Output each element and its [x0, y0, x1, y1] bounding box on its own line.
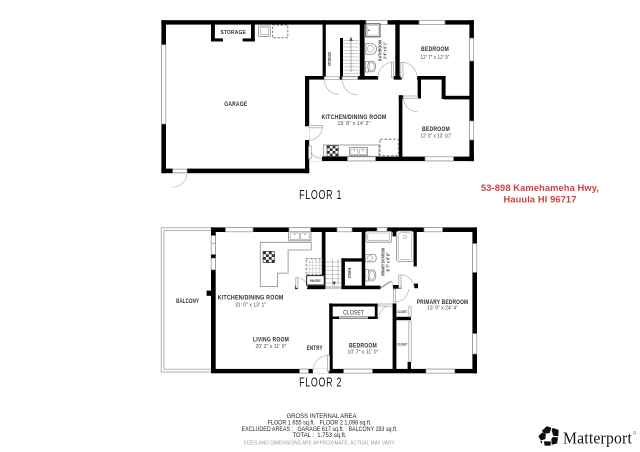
svg-text:10′ 7″ x 11′ 0″: 10′ 7″ x 11′ 0″: [348, 349, 379, 355]
svg-text:FLOOR 1: FLOOR 1: [299, 187, 342, 202]
svg-text:8′ 7″ x 8′ 9″: 8′ 7″ x 8′ 9″: [385, 253, 390, 272]
svg-text:31′ 0″ x 13′ 1″: 31′ 0″ x 13′ 1″: [235, 303, 266, 309]
svg-text:SIZES AND DIMENSIONS ARE APPRO: SIZES AND DIMENSIONS ARE APPROXIMATE, AC…: [244, 441, 396, 447]
svg-text:Hauula HI 96717: Hauula HI 96717: [504, 194, 577, 205]
svg-text:GARAGE: GARAGE: [224, 101, 247, 108]
svg-text:BEDROOM: BEDROOM: [421, 46, 449, 53]
svg-text:BEDROOM: BEDROOM: [422, 126, 450, 133]
svg-text:KITCHEN/DINING ROOM: KITCHEN/DINING ROOM: [218, 294, 284, 301]
svg-text:ENTRY: ENTRY: [307, 345, 323, 352]
svg-text:13′ 9″ x 24′ 4″: 13′ 9″ x 24′ 4″: [427, 305, 458, 311]
svg-text:BALCONY: BALCONY: [176, 298, 199, 305]
svg-text:FLOOR 2: FLOOR 2: [299, 375, 342, 390]
svg-text:CLOSET: CLOSET: [343, 309, 364, 316]
svg-text:12′ 0″ x 13′ 10″: 12′ 0″ x 13′ 10″: [421, 133, 452, 139]
svg-text:CLOSET: CLOSET: [397, 342, 408, 346]
svg-text:PANTRY: PANTRY: [310, 279, 321, 283]
svg-text:20′ 2″ x 11′ 0″: 20′ 2″ x 11′ 0″: [256, 344, 287, 350]
svg-text:TOTAL : 1,753 sq.ft.: TOTAL : 1,753 sq.ft.: [293, 432, 347, 439]
svg-text:CLOSET: CLOSET: [397, 310, 408, 314]
svg-text:12′ 7″ x 12′ 9″: 12′ 7″ x 12′ 9″: [421, 55, 450, 61]
svg-text:LIVING ROOM: LIVING ROOM: [253, 336, 289, 343]
svg-text:KITCHEN/DINING ROOM: KITCHEN/DINING ROOM: [322, 114, 387, 121]
svg-text:BEDROOM: BEDROOM: [349, 342, 377, 349]
svg-text:STORAGE: STORAGE: [347, 268, 352, 279]
svg-text:53-898 Kamehameha Hwy,: 53-898 Kamehameha Hwy,: [481, 183, 599, 194]
svg-text:Matterport: Matterport: [563, 428, 632, 447]
svg-text:STORAGE: STORAGE: [327, 52, 332, 66]
svg-text:3′ 4″ x 9′ 1″: 3′ 4″ x 9′ 1″: [383, 42, 388, 59]
svg-text:15′ 8″ x 14′ 2″: 15′ 8″ x 14′ 2″: [338, 121, 371, 127]
svg-text:STORAGE: STORAGE: [220, 30, 246, 36]
